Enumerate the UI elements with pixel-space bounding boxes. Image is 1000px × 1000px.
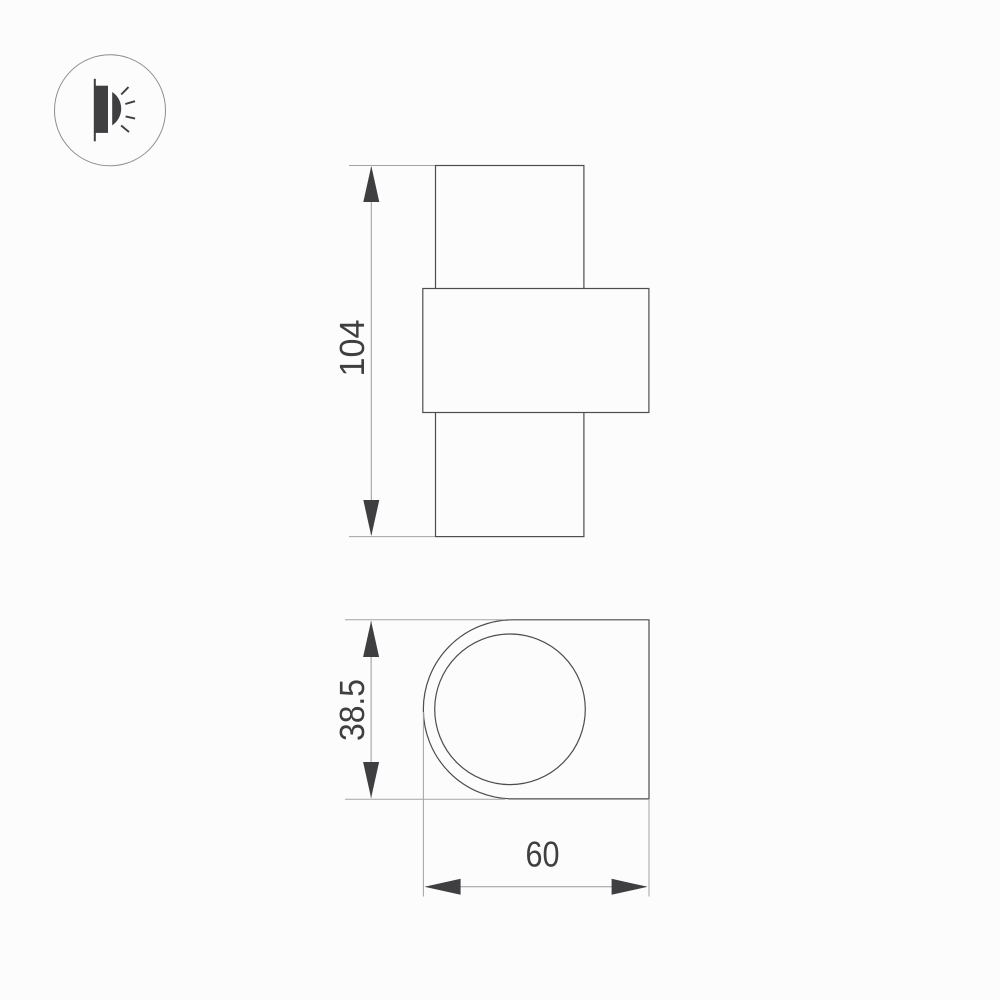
svg-text:38.5: 38.5: [333, 679, 372, 741]
svg-text:60: 60: [526, 834, 560, 875]
svg-text:104: 104: [333, 320, 372, 377]
